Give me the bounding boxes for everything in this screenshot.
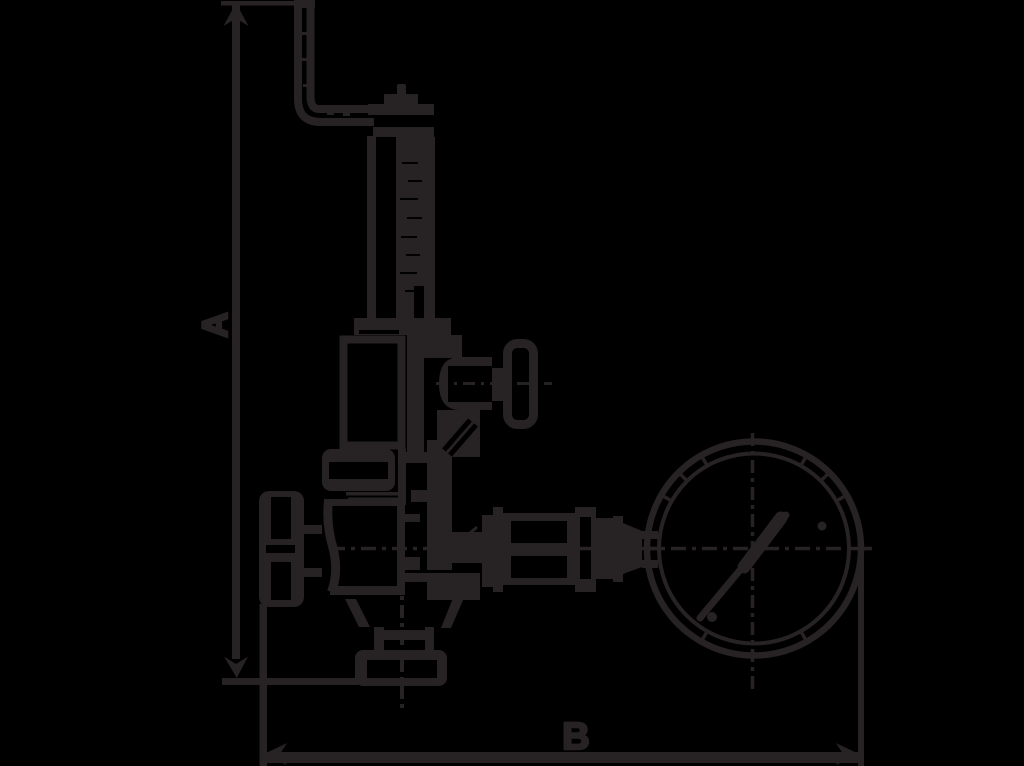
svg-text:A: A [196, 312, 235, 337]
svg-text:B: B [562, 716, 589, 758]
